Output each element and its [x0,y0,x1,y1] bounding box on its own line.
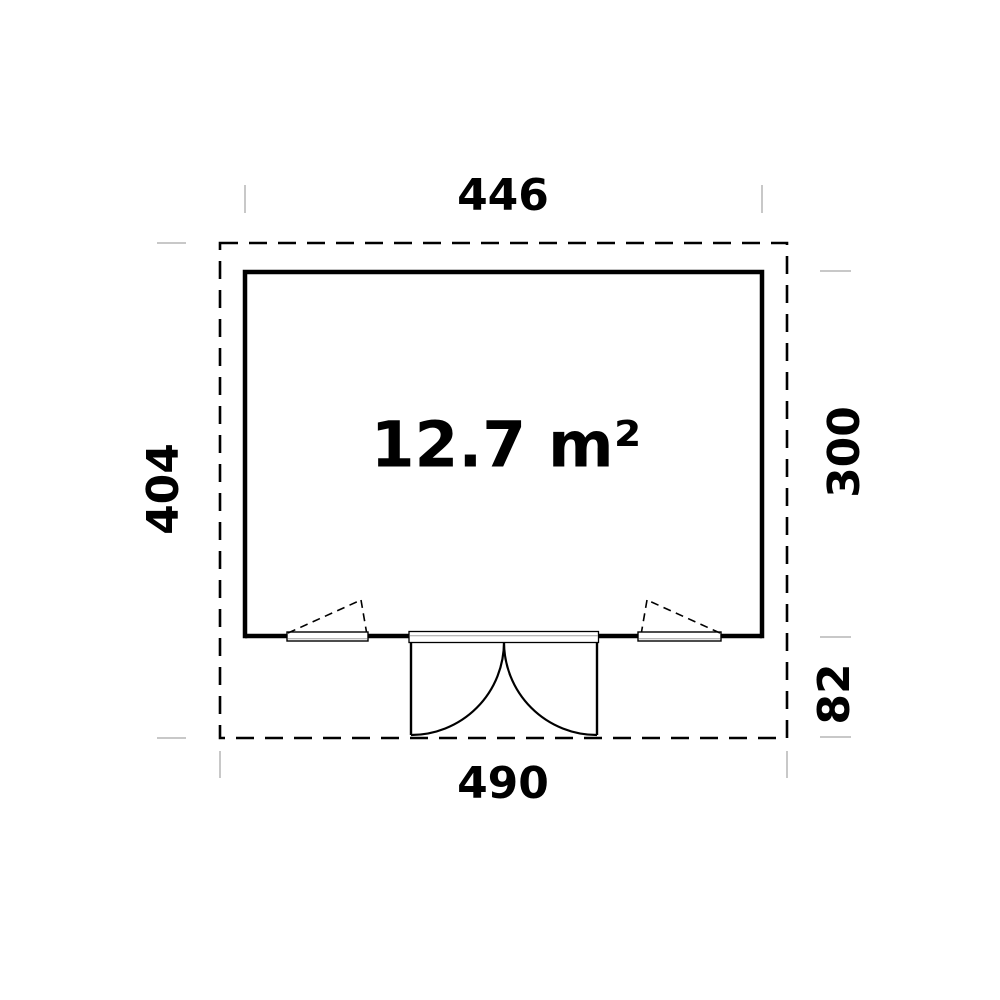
window-right-frame [638,632,721,641]
window-left-swing-dashed [288,600,367,633]
floor-plan-canvas: 446 404 300 82 490 12.7 m² [0,0,1000,1000]
double-door [409,632,599,736]
area-label: 12.7 m² [371,414,642,477]
door-swing-arc-left [411,642,504,735]
door-swing-arc-right [504,642,597,735]
window-left-frame [287,632,368,641]
door-threshold-frame [409,632,599,643]
window-left [287,600,368,641]
dimension-label-height-right: 300 [823,406,867,498]
dimension-label-width-bottom: 490 [457,762,549,806]
window-right [638,600,721,641]
dimension-label-depth-right-lower: 82 [813,663,857,724]
dimension-label-height-left: 404 [142,443,186,535]
window-right-swing-dashed [642,600,721,633]
dimension-label-width-top: 446 [457,174,549,218]
roof-outline-dashed [220,243,787,738]
